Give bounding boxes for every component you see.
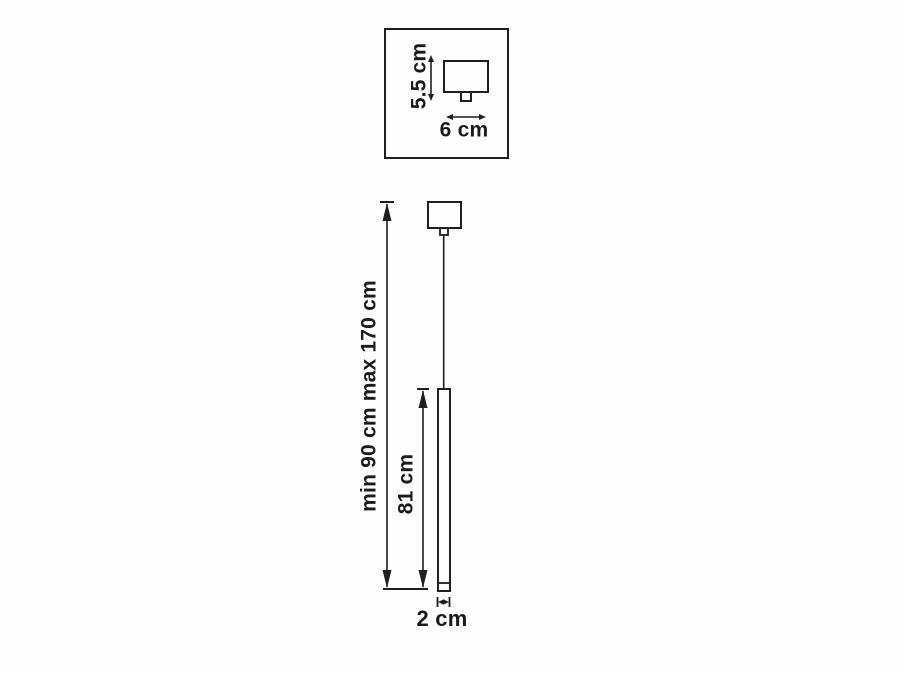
canopy-height-label: 5.5 cm [409, 43, 430, 110]
canopy-detail-tab [461, 92, 471, 101]
canopy-width-label: 6 cm [440, 120, 489, 141]
pendant-connector [440, 228, 448, 235]
overall-height-label: min 90 cm max 170 cm [359, 280, 380, 512]
tube-length-dimension [417, 389, 429, 588]
pendant-canopy [428, 202, 461, 228]
pendant-tube [438, 389, 450, 591]
overall-height-dimension [380, 202, 428, 589]
pendant-lamp-drawing [428, 202, 461, 591]
tube-length-label: 81 cm [396, 454, 417, 515]
dimension-diagram-canvas: 5.5 cm 6 cm min 90 cm max 170 cm 81 cm 2… [0, 0, 900, 675]
diagram-linework [0, 0, 900, 675]
canopy-detail-body [444, 61, 488, 92]
tube-diameter-label: 2 cm [417, 608, 468, 630]
